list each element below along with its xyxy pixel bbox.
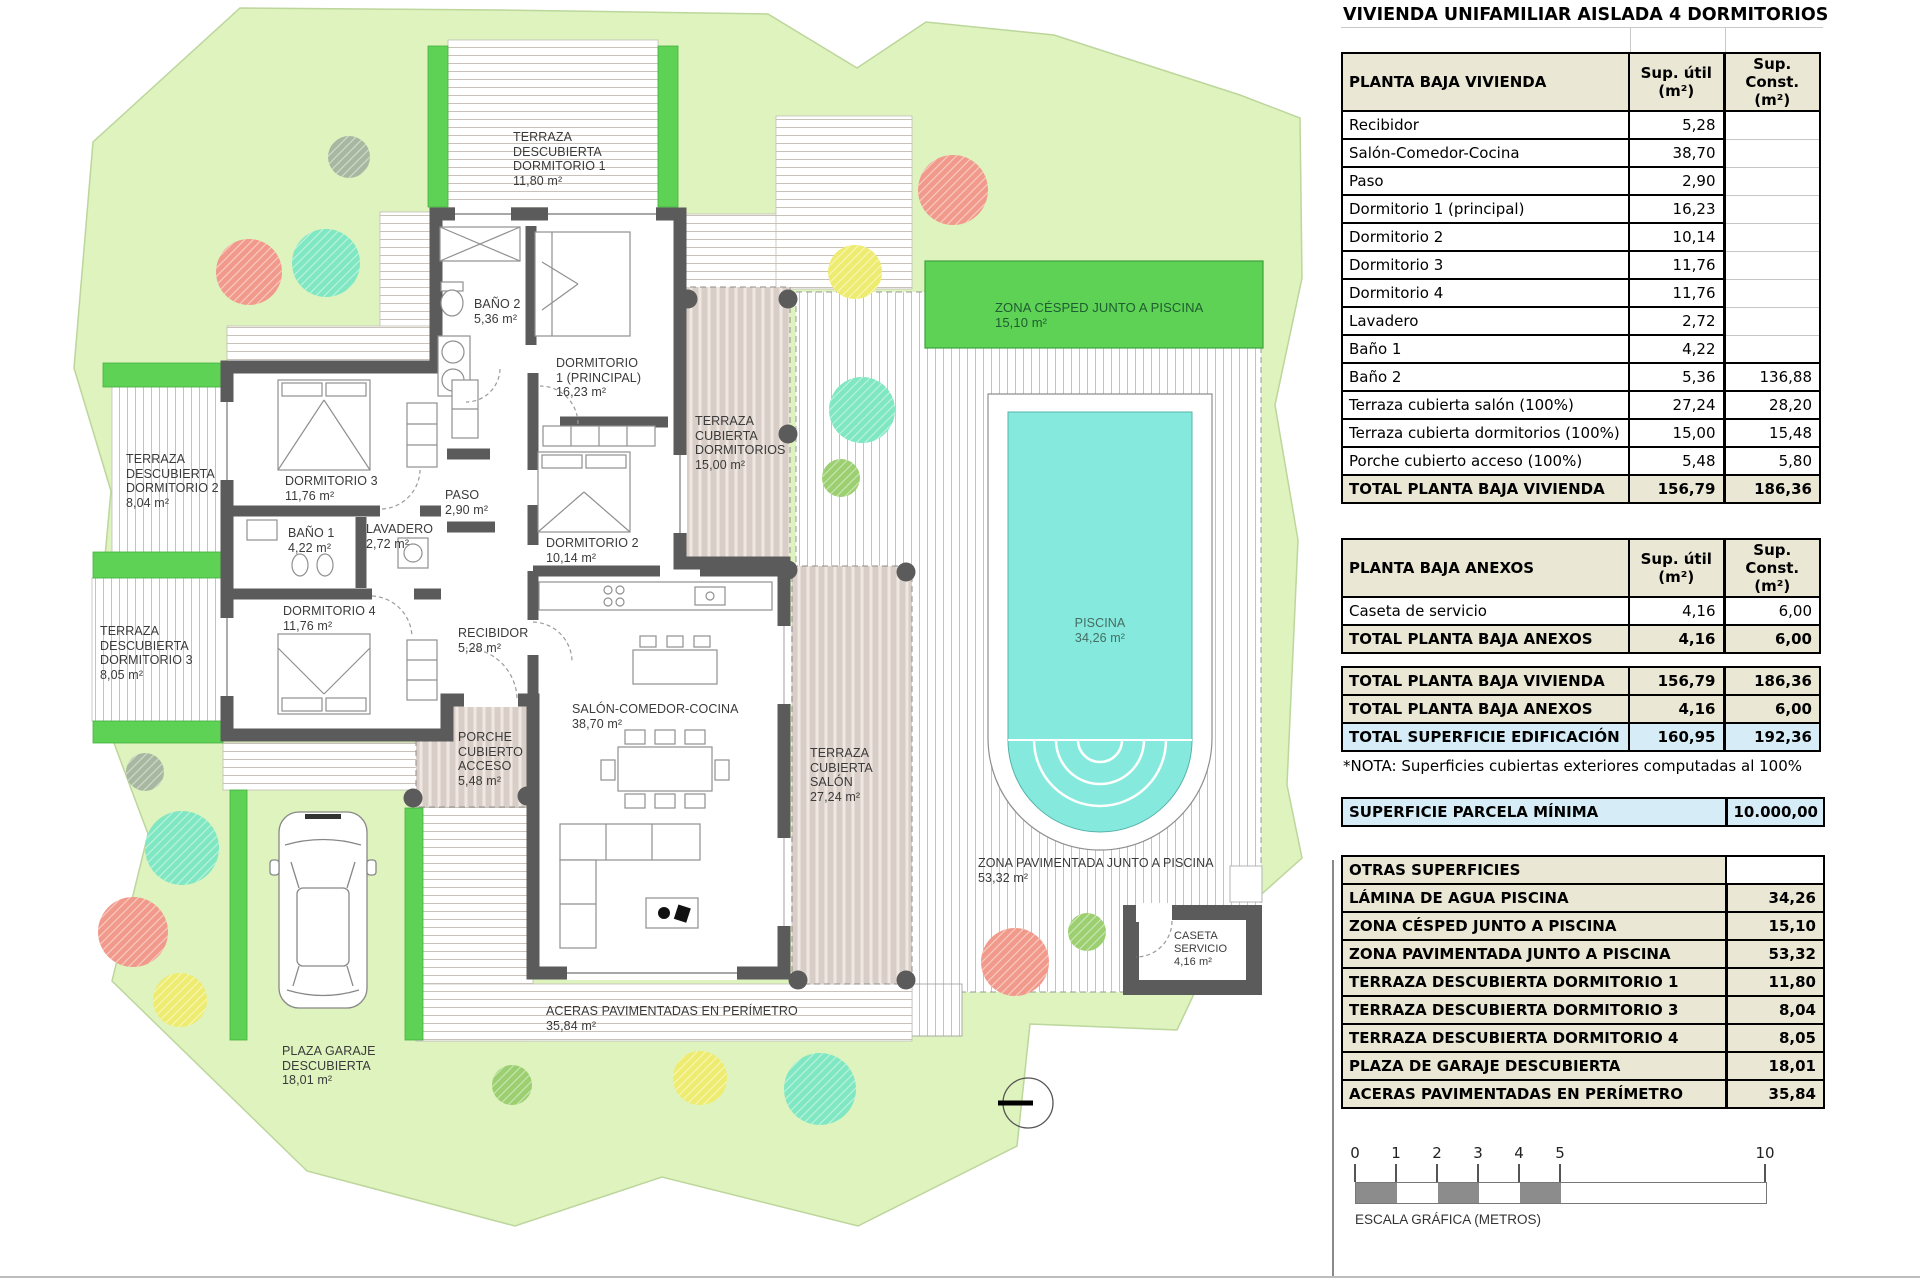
surface-area-cell: 34,26	[1726, 884, 1824, 912]
util-area-cell: 2,72	[1629, 307, 1724, 335]
table-row: Terraza cubierta salón (100%) 27,24 28,2…	[1342, 391, 1820, 419]
total-row: TOTAL PLANTA BAJA VIVIENDA 156,79 186,36	[1342, 475, 1820, 503]
room-name-cell: Lavadero	[1342, 307, 1629, 335]
util-area-cell: 4,16	[1629, 597, 1724, 625]
label-zona-cesped: ZONA CÉSPED JUNTO A PISCINA 15,10 m²	[995, 300, 1265, 330]
scale-tick-label: 2	[1422, 1144, 1452, 1162]
label-dormitorio2: DORMITORIO 2 10,14 m²	[546, 536, 666, 565]
surface-name-cell: PLAZA DE GARAJE DESCUBIERTA	[1342, 1052, 1726, 1080]
label-porche: PORCHE CUBIERTO ACCESO 5,48 m²	[458, 730, 548, 788]
surface-area-cell: 35,84	[1726, 1080, 1824, 1108]
util-area-cell: 4,22	[1629, 335, 1724, 363]
summary-row: TOTAL PLANTA BAJA VIVIENDA 156,79 186,36	[1342, 667, 1820, 695]
const-area-cell: 28,20	[1724, 391, 1820, 419]
table-row: PLAZA DE GARAJE DESCUBIERTA 18,01	[1342, 1052, 1824, 1080]
column-header: PLANTA BAJA ANEXOS	[1342, 539, 1629, 597]
label-piscina: PISCINA 34,26 m²	[1040, 616, 1160, 645]
surface-name-cell: ZONA PAVIMENTADA JUNTO A PISCINA	[1342, 940, 1726, 968]
surface-name-cell: TERRAZA DESCUBIERTA DORMITORIO 4	[1342, 1024, 1726, 1052]
util-area-cell: 11,76	[1629, 251, 1724, 279]
label-terraza-cubierta-salon: TERRAZA CUBIERTA SALÓN 27,24 m²	[810, 746, 900, 804]
surface-area-cell: 53,32	[1726, 940, 1824, 968]
table-otras-superficies: OTRAS SUPERFICIES LÁMINA DE AGUA PISCINA…	[1341, 855, 1825, 1109]
label-salon: SALÓN-COMEDOR-COCINA 38,70 m²	[572, 702, 757, 731]
label-lavadero: LAVADERO 2,72 m²	[366, 522, 456, 551]
table-row: Lavadero 2,72	[1342, 307, 1820, 335]
label-recibidor: RECIBIDOR 5,28 m²	[458, 626, 558, 655]
surface-name-cell: LÁMINA DE AGUA PISCINA	[1342, 884, 1726, 912]
const-area-cell	[1724, 167, 1820, 195]
scale-tick-label: 4	[1504, 1144, 1534, 1162]
room-name-cell: Caseta de servicio	[1342, 597, 1629, 625]
surface-name-cell: TERRAZA DESCUBIERTA DORMITORIO 3	[1342, 996, 1726, 1024]
util-area-cell: 11,76	[1629, 279, 1724, 307]
label-aceras: ACERAS PAVIMENTADAS EN PERÍMETRO 35,84 m…	[546, 1004, 826, 1033]
surface-name-cell: TERRAZA DESCUBIERTA DORMITORIO 1	[1342, 968, 1726, 996]
room-name-cell: Dormitorio 4	[1342, 279, 1629, 307]
surface-area-cell: 8,05	[1726, 1024, 1824, 1052]
surface-area-cell: 18,01	[1726, 1052, 1824, 1080]
label-bano1: BAÑO 1 4,22 m²	[288, 526, 368, 555]
label-dormitorio3: DORMITORIO 3 11,76 m²	[285, 474, 405, 503]
summary-row: TOTAL PLANTA BAJA ANEXOS 4,16 6,00	[1342, 695, 1820, 723]
column-header: Sup. Const. (m²)	[1724, 53, 1820, 111]
surface-area-cell: 11,80	[1726, 968, 1824, 996]
room-name-cell: Terraza cubierta salón (100%)	[1342, 391, 1629, 419]
const-area-cell: 6,00	[1724, 597, 1820, 625]
util-area-cell: 5,28	[1629, 111, 1724, 139]
const-area-cell: 136,88	[1724, 363, 1820, 391]
util-area-cell: 10,14	[1629, 223, 1724, 251]
table-parcela-minima: SUPERFICIE PARCELA MÍNIMA 10.000,00	[1341, 797, 1825, 827]
const-area-cell	[1724, 111, 1820, 139]
util-area-cell: 5,48	[1629, 447, 1724, 475]
column-header: PLANTA BAJA VIVIENDA	[1342, 53, 1629, 111]
table-row: Caseta de servicio 4,16 6,00	[1342, 597, 1820, 625]
scale-bar-rule	[1355, 1182, 1767, 1204]
room-name-cell: Recibidor	[1342, 111, 1629, 139]
architectural-plan-sheet: { "title": "VIVIENDA UNIFAMILIAR AISLADA…	[0, 0, 1920, 1280]
table-row: Terraza cubierta dormitorios (100%) 15,0…	[1342, 419, 1820, 447]
label-terraza-descubierta-dorm2: TERRAZA DESCUBIERTA DORMITORIO 2 8,04 m²	[126, 452, 236, 510]
scale-tick-label: 1	[1381, 1144, 1411, 1162]
room-name-cell: Baño 1	[1342, 335, 1629, 363]
table-row: Dormitorio 3 11,76	[1342, 251, 1820, 279]
surface-area-cell: 8,04	[1726, 996, 1824, 1024]
footnote: *NOTA: Superficies cubiertas exteriores …	[1343, 757, 1802, 775]
const-area-cell	[1724, 307, 1820, 335]
label-dormitorio1: DORMITORIO 1 (PRINCIPAL) 16,23 m²	[556, 356, 671, 400]
util-area-cell: 38,70	[1629, 139, 1724, 167]
table-row: Baño 1 4,22	[1342, 335, 1820, 363]
room-name-cell: Terraza cubierta dormitorios (100%)	[1342, 419, 1629, 447]
room-name-cell: Dormitorio 2	[1342, 223, 1629, 251]
parcela-row: SUPERFICIE PARCELA MÍNIMA 10.000,00	[1342, 798, 1824, 826]
const-area-cell	[1724, 223, 1820, 251]
table-row: Paso 2,90	[1342, 167, 1820, 195]
scale-tick-label: 0	[1340, 1144, 1370, 1162]
scale-bar-caption: ESCALA GRÁFICA (METROS)	[1355, 1212, 1541, 1227]
table-planta-baja-anexos: PLANTA BAJA ANEXOS Sup. útil (m²) Sup. C…	[1341, 538, 1821, 654]
label-dormitorio4: DORMITORIO 4 11,76 m²	[283, 604, 403, 633]
const-area-cell: 15,48	[1724, 419, 1820, 447]
grid-line	[1630, 27, 1631, 52]
label-terraza-descubierta-dorm1: TERRAZA DESCUBIERTA DORMITORIO 1 11,80 m…	[513, 130, 628, 188]
table-row: Dormitorio 4 11,76	[1342, 279, 1820, 307]
label-plaza-garaje: PLAZA GARAJE DESCUBIERTA 18,01 m²	[282, 1044, 422, 1088]
sheet-divider	[1332, 860, 1334, 1277]
const-area-cell	[1724, 335, 1820, 363]
room-name-cell: Dormitorio 1 (principal)	[1342, 195, 1629, 223]
column-header: Sup. Const. (m²)	[1724, 539, 1820, 597]
room-name-cell: Paso	[1342, 167, 1629, 195]
table-row: Dormitorio 2 10,14	[1342, 223, 1820, 251]
table-row: Dormitorio 1 (principal) 16,23	[1342, 195, 1820, 223]
table-row: Salón-Comedor-Cocina 38,70	[1342, 139, 1820, 167]
surface-name-cell: ZONA CÉSPED JUNTO A PISCINA	[1342, 912, 1726, 940]
table-row: LÁMINA DE AGUA PISCINA 34,26	[1342, 884, 1824, 912]
const-area-cell	[1724, 279, 1820, 307]
util-area-cell: 2,90	[1629, 167, 1724, 195]
label-terraza-descubierta-dorm3: TERRAZA DESCUBIERTA DORMITORIO 3 8,05 m²	[100, 624, 215, 682]
sheet-bottom-border	[0, 1276, 1920, 1278]
table-row: ZONA CÉSPED JUNTO A PISCINA 15,10	[1342, 912, 1824, 940]
label-caseta-servicio: CASETA SERVICIO 4,16 m²	[1174, 930, 1254, 968]
surface-area-cell: 15,10	[1726, 912, 1824, 940]
empty-header-cell	[1726, 856, 1824, 884]
table-row: TERRAZA DESCUBIERTA DORMITORIO 1 11,80	[1342, 968, 1824, 996]
grid-line	[1341, 27, 1823, 28]
car	[270, 812, 376, 1008]
table-row: ZONA PAVIMENTADA JUNTO A PISCINA 53,32	[1342, 940, 1824, 968]
page-title: VIVIENDA UNIFAMILIAR AISLADA 4 DORMITORI…	[1343, 5, 1883, 25]
grid-line	[1725, 27, 1726, 52]
total-row: TOTAL PLANTA BAJA ANEXOS 4,16 6,00	[1342, 625, 1820, 653]
table-row: Baño 2 5,36 136,88	[1342, 363, 1820, 391]
column-header: Sup. útil (m²)	[1629, 539, 1724, 597]
table-planta-baja-vivienda: PLANTA BAJA VIVIENDA Sup. útil (m²) Sup.…	[1341, 52, 1821, 504]
room-name-cell: Salón-Comedor-Cocina	[1342, 139, 1629, 167]
const-area-cell	[1724, 251, 1820, 279]
room-name-cell: Dormitorio 3	[1342, 251, 1629, 279]
label-terraza-cubierta-dormitorios: TERRAZA CUBIERTA DORMITORIOS 15,00 m²	[695, 414, 800, 472]
util-area-cell: 5,36	[1629, 363, 1724, 391]
room-name-cell: Porche cubierto acceso (100%)	[1342, 447, 1629, 475]
table-row: Porche cubierto acceso (100%) 5,48 5,80	[1342, 447, 1820, 475]
const-area-cell	[1724, 139, 1820, 167]
util-area-cell: 15,00	[1629, 419, 1724, 447]
const-area-cell	[1724, 195, 1820, 223]
table-resumen: TOTAL PLANTA BAJA VIVIENDA 156,79 186,36…	[1341, 666, 1821, 752]
summary-total-row: TOTAL SUPERFICIE EDIFICACIÓN 160,95 192,…	[1342, 723, 1820, 751]
surface-name-cell: ACERAS PAVIMENTADAS EN PERÍMETRO	[1342, 1080, 1726, 1108]
label-zona-pavimentada: ZONA PAVIMENTADA JUNTO A PISCINA 53,32 m…	[978, 856, 1228, 885]
const-area-cell: 5,80	[1724, 447, 1820, 475]
column-header: Sup. útil (m²)	[1629, 53, 1724, 111]
label-bano2: BAÑO 2 5,36 m²	[474, 297, 564, 326]
column-header: OTRAS SUPERFICIES	[1342, 856, 1726, 884]
table-row: TERRAZA DESCUBIERTA DORMITORIO 3 8,04	[1342, 996, 1824, 1024]
room-name-cell: Baño 2	[1342, 363, 1629, 391]
util-area-cell: 16,23	[1629, 195, 1724, 223]
scale-tick-label: 10	[1750, 1144, 1780, 1162]
label-paso: PASO 2,90 m²	[445, 488, 525, 517]
table-row: TERRAZA DESCUBIERTA DORMITORIO 4 8,05	[1342, 1024, 1824, 1052]
scale-tick-label: 5	[1545, 1144, 1575, 1162]
table-row: ACERAS PAVIMENTADAS EN PERÍMETRO 35,84	[1342, 1080, 1824, 1108]
util-area-cell: 27,24	[1629, 391, 1724, 419]
scale-tick-label: 3	[1463, 1144, 1493, 1162]
table-row: Recibidor 5,28	[1342, 111, 1820, 139]
